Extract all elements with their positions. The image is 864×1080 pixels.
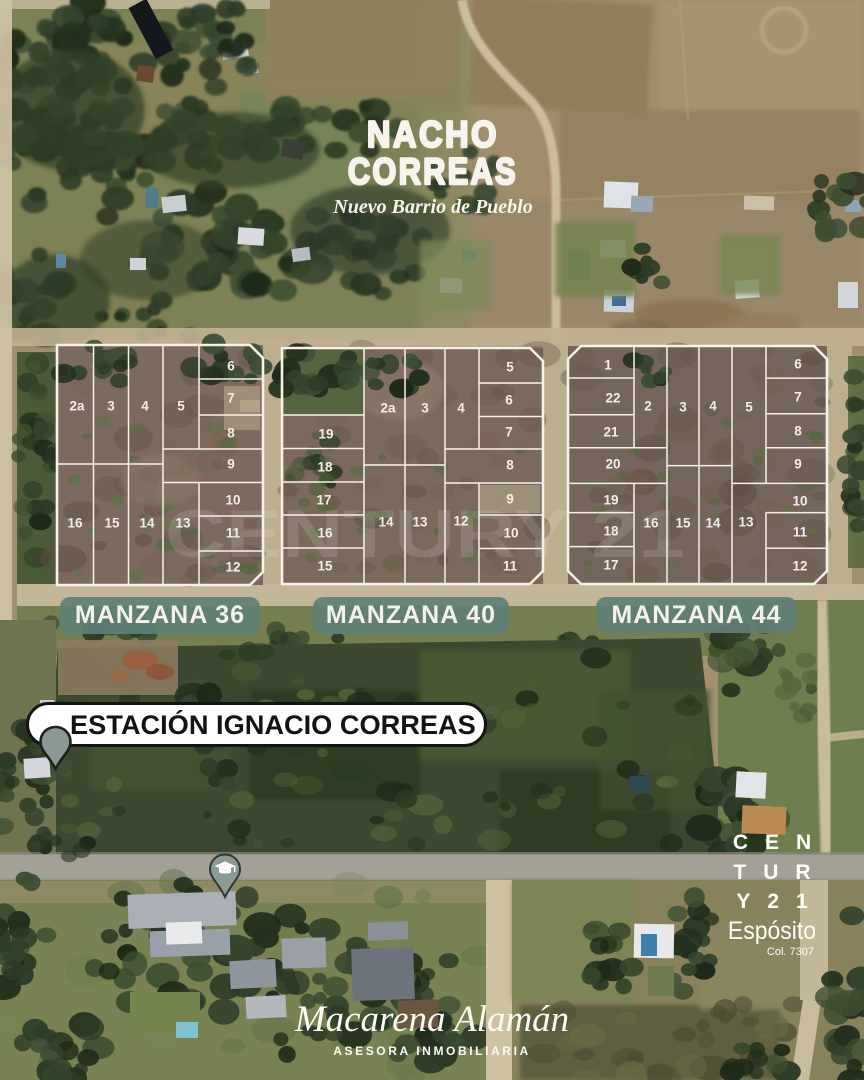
- svg-text:10: 10: [225, 493, 240, 508]
- svg-text:15: 15: [317, 559, 333, 574]
- svg-text:17: 17: [603, 558, 618, 573]
- svg-text:15: 15: [104, 516, 120, 531]
- svg-text:11: 11: [226, 526, 241, 541]
- svg-text:12: 12: [453, 514, 468, 529]
- svg-text:16: 16: [317, 526, 333, 541]
- svg-text:15: 15: [675, 516, 691, 531]
- svg-text:17: 17: [316, 493, 331, 508]
- svg-text:1: 1: [604, 358, 612, 373]
- svg-text:4: 4: [709, 399, 717, 414]
- svg-text:9: 9: [227, 457, 235, 472]
- svg-text:19: 19: [603, 493, 618, 508]
- svg-text:5: 5: [506, 360, 514, 375]
- svg-text:10: 10: [792, 494, 807, 509]
- svg-text:12: 12: [225, 560, 240, 575]
- svg-text:13: 13: [175, 516, 191, 531]
- svg-text:8: 8: [506, 458, 514, 473]
- svg-text:11: 11: [503, 559, 518, 574]
- svg-text:8: 8: [227, 426, 235, 441]
- svg-text:6: 6: [227, 359, 235, 374]
- svg-text:16: 16: [643, 516, 659, 531]
- svg-text:4: 4: [141, 399, 149, 414]
- svg-text:9: 9: [506, 492, 514, 507]
- svg-text:18: 18: [317, 460, 333, 475]
- svg-text:14: 14: [378, 515, 394, 530]
- svg-text:18: 18: [603, 524, 619, 539]
- svg-text:16: 16: [67, 516, 83, 531]
- svg-text:6: 6: [505, 393, 513, 408]
- svg-text:5: 5: [745, 400, 753, 415]
- svg-text:14: 14: [139, 516, 155, 531]
- svg-text:4: 4: [457, 401, 465, 416]
- svg-text:3: 3: [421, 401, 429, 416]
- svg-text:8: 8: [794, 424, 802, 439]
- svg-text:2: 2: [644, 399, 652, 414]
- svg-text:11: 11: [793, 525, 808, 540]
- svg-text:22: 22: [605, 391, 620, 406]
- svg-text:CORREAS: CORREAS: [348, 151, 518, 192]
- svg-text:7: 7: [227, 391, 235, 406]
- svg-text:7: 7: [505, 425, 513, 440]
- svg-text:14: 14: [705, 516, 721, 531]
- svg-text:Nuevo Barrio de Pueblo: Nuevo Barrio de Pueblo: [332, 196, 532, 218]
- svg-text:3: 3: [679, 400, 687, 415]
- svg-text:13: 13: [738, 515, 754, 530]
- svg-text:21: 21: [603, 425, 619, 440]
- svg-text:2a: 2a: [380, 401, 396, 416]
- svg-text:13: 13: [412, 515, 428, 530]
- svg-text:9: 9: [794, 457, 802, 472]
- svg-text:20: 20: [605, 457, 620, 472]
- svg-text:10: 10: [503, 526, 518, 541]
- svg-text:3: 3: [107, 399, 115, 414]
- svg-text:12: 12: [792, 559, 807, 574]
- svg-text:7: 7: [794, 390, 802, 405]
- svg-text:19: 19: [318, 427, 333, 442]
- svg-text:6: 6: [794, 357, 802, 372]
- svg-text:5: 5: [177, 399, 185, 414]
- svg-text:NACHO: NACHO: [367, 114, 499, 155]
- svg-text:2a: 2a: [69, 399, 85, 414]
